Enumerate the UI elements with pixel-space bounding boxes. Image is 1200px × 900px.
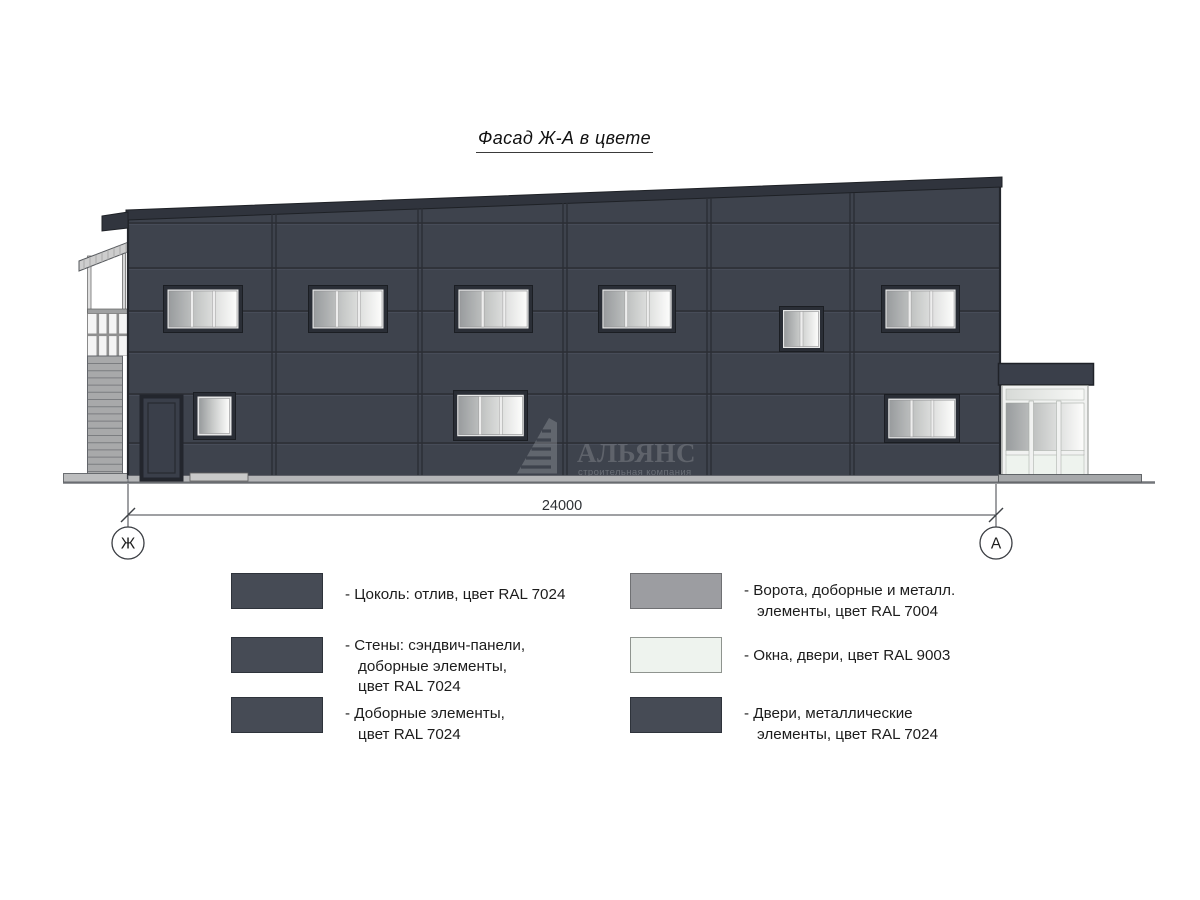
window-upper-4 xyxy=(598,286,675,333)
legend-swatch-doors xyxy=(630,697,722,733)
window-upper-small xyxy=(780,307,824,352)
legend-label-walls: - Стены: сэндвич-панели, доборные элемен… xyxy=(345,636,525,698)
facade-wall xyxy=(128,179,1000,478)
axis-marker-right: А xyxy=(980,527,1012,559)
legend-label-trim: - Доборные элементы, цвет RAL 7024 xyxy=(345,704,505,745)
window-upper-1 xyxy=(164,286,243,333)
window-upper-5 xyxy=(881,286,959,333)
vestibule-roof xyxy=(999,364,1094,386)
page-title: Фасад Ж-А в цвете xyxy=(476,128,653,153)
legend-label-windows: - Окна, двери, цвет RAL 9003 xyxy=(744,646,950,667)
vestibule-platform xyxy=(999,475,1142,483)
plinth-strip xyxy=(128,476,1000,483)
window-lower-2 xyxy=(884,395,959,443)
legend-swatch-trim xyxy=(231,697,323,733)
metal-door xyxy=(140,395,184,482)
window-lower-1 xyxy=(453,391,527,441)
axis-letter-right: А xyxy=(991,536,1002,553)
stair-flight xyxy=(64,356,131,482)
external-staircase xyxy=(64,242,131,483)
vestibule-transom xyxy=(1006,389,1084,400)
legend-swatch-gates xyxy=(630,573,722,609)
legend-swatch-windows xyxy=(630,637,722,673)
legend-label-plinth: - Цоколь: отлив, цвет RAL 7024 xyxy=(345,585,565,606)
legend-swatch-walls xyxy=(231,637,323,673)
facade-drawing-sheet: АЛЬЯНС строительная компания 24000 Ж А Ф… xyxy=(0,0,1200,900)
window-upper-3 xyxy=(454,286,532,333)
legend-label-doors: - Двери, металлические элементы, цвет RA… xyxy=(744,704,938,745)
roof-overhang xyxy=(102,212,128,231)
watermark-company-subtitle: строительная компания xyxy=(578,467,692,478)
axis-marker-left: Ж xyxy=(112,527,144,559)
entrance-vestibule xyxy=(999,364,1142,483)
legend-label-gates: - Ворота, доборные и металл. элементы, ц… xyxy=(744,581,955,622)
door-threshold xyxy=(190,473,248,481)
stair-post-right xyxy=(123,250,126,312)
vestibule-bottom-panels xyxy=(1006,455,1084,476)
stair-base xyxy=(64,474,131,483)
watermark-company-name: АЛЬЯНС xyxy=(577,438,696,468)
window-upper-2 xyxy=(309,286,388,333)
window-lower-small xyxy=(194,393,236,440)
vestibule-glазing xyxy=(1006,403,1084,451)
legend-swatch-plinth xyxy=(231,573,323,609)
stair-railing xyxy=(88,309,128,356)
dimension-value: 24000 xyxy=(542,498,582,514)
axis-letter-left: Ж xyxy=(121,536,136,553)
